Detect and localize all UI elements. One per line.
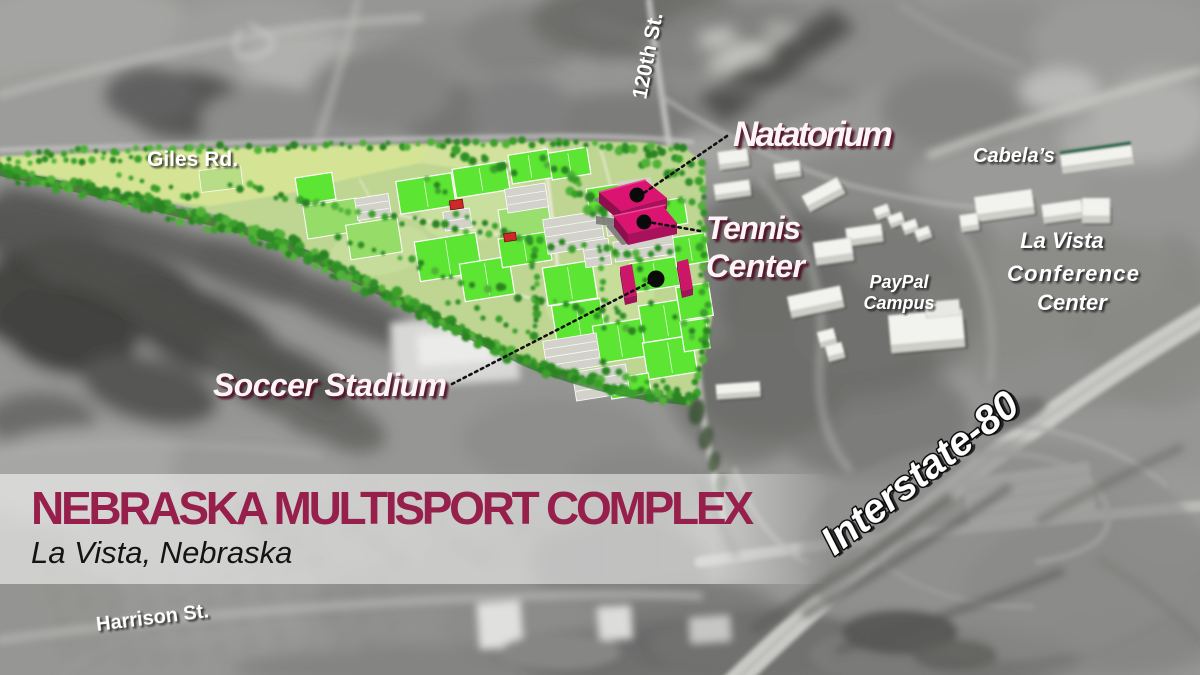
svg-text:Natatorium: Natatorium <box>733 115 893 154</box>
svg-text:La Vista: La Vista <box>1020 228 1104 253</box>
svg-text:Soccer Stadium: Soccer Stadium <box>213 367 447 403</box>
svg-text:Center: Center <box>706 248 807 284</box>
svg-text:NEBRASKA MULTISPORT COMPLEX: NEBRASKA MULTISPORT COMPLEX <box>31 482 754 534</box>
svg-text:Cabela’s: Cabela’s <box>973 145 1055 167</box>
svg-text:Tennis: Tennis <box>706 210 801 246</box>
svg-text:Conference: Conference <box>1007 261 1139 286</box>
svg-text:PayPal: PayPal <box>869 272 929 292</box>
svg-text:Campus: Campus <box>863 293 934 313</box>
svg-text:La Vista, Nebraska: La Vista, Nebraska <box>31 535 292 570</box>
svg-text:Center: Center <box>1037 290 1108 315</box>
svg-text:Giles Rd.: Giles Rd. <box>147 148 238 171</box>
